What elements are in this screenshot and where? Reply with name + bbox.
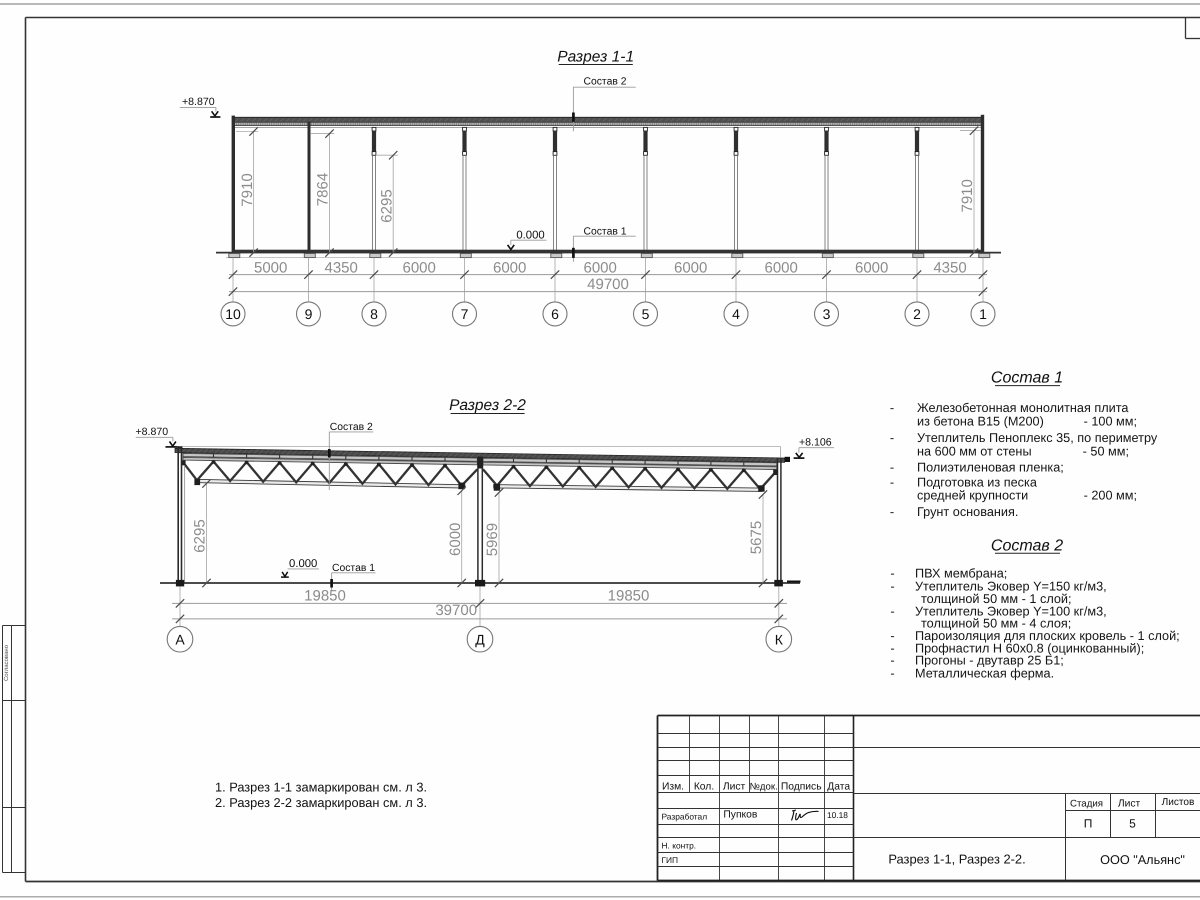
svg-text:Лист: Лист bbox=[723, 781, 746, 792]
svg-text:Дата: Дата bbox=[827, 781, 850, 792]
svg-text:К: К bbox=[775, 631, 784, 647]
svg-text:7910: 7910 bbox=[239, 173, 256, 206]
svg-text:5000: 5000 bbox=[254, 260, 287, 277]
svg-text:-: - bbox=[890, 401, 894, 415]
svg-text:6295: 6295 bbox=[192, 519, 209, 552]
svg-text:7910: 7910 bbox=[959, 179, 976, 212]
svg-text:-: - bbox=[890, 666, 894, 680]
svg-text:6000: 6000 bbox=[403, 260, 436, 277]
svg-text:2: 2 bbox=[913, 306, 921, 322]
svg-text:6000: 6000 bbox=[855, 260, 888, 277]
svg-text:Разрез 2-2: Разрез 2-2 bbox=[449, 397, 526, 414]
svg-text:на 600 мм от стены: на 600 мм от стены bbox=[917, 444, 1032, 458]
svg-text:2. Разрез 2-2 замаркирован см.: 2. Разрез 2-2 замаркирован см. л 3. bbox=[215, 795, 427, 810]
svg-text:1. Разрез 1-1 замаркирован см.: 1. Разрез 1-1 замаркирован см. л 3. bbox=[215, 780, 427, 795]
svg-text:- 50 мм;: - 50 мм; bbox=[1083, 444, 1129, 458]
svg-text:0.000: 0.000 bbox=[289, 558, 317, 570]
svg-text:Утеплитель Пеноплекс 35, по пе: Утеплитель Пеноплекс 35, по периметру bbox=[917, 431, 1158, 445]
svg-text:6000: 6000 bbox=[765, 260, 798, 277]
svg-text:из бетона В15 (М200): из бетона В15 (М200) bbox=[917, 414, 1044, 428]
svg-text:5: 5 bbox=[1129, 817, 1136, 831]
svg-text:-: - bbox=[890, 431, 894, 445]
svg-text:Состав 1: Состав 1 bbox=[583, 226, 626, 237]
svg-text:П: П bbox=[1084, 817, 1093, 831]
svg-text:6000: 6000 bbox=[493, 260, 526, 277]
svg-text:7: 7 bbox=[461, 306, 469, 322]
svg-text:-: - bbox=[890, 567, 894, 581]
svg-text:Листов: Листов bbox=[1162, 797, 1195, 808]
svg-text:4350: 4350 bbox=[325, 260, 358, 277]
svg-text:3: 3 bbox=[823, 306, 831, 322]
svg-text:10: 10 bbox=[225, 306, 241, 322]
svg-text:Грунт основания.: Грунт основания. bbox=[917, 505, 1018, 519]
svg-text:ПВХ мембрана;: ПВХ мембрана; bbox=[915, 567, 1007, 581]
svg-text:Состав 2: Состав 2 bbox=[330, 422, 373, 433]
svg-text:6295: 6295 bbox=[378, 189, 395, 222]
svg-text:Кол.: Кол. bbox=[694, 781, 714, 792]
svg-text:6000: 6000 bbox=[674, 260, 707, 277]
svg-text:-: - bbox=[890, 580, 894, 594]
svg-text:6000: 6000 bbox=[584, 260, 617, 277]
svg-text:А: А bbox=[175, 631, 185, 647]
svg-text:Полиэтиленовая пленка;: Полиэтиленовая пленка; bbox=[917, 460, 1064, 474]
svg-text:Металлическая ферма.: Металлическая ферма. bbox=[915, 666, 1054, 680]
svg-text:- 100 мм;: - 100 мм; bbox=[1084, 414, 1137, 428]
svg-text:4: 4 bbox=[732, 306, 740, 322]
svg-text:Стадия: Стадия bbox=[1070, 798, 1103, 809]
svg-text:-: - bbox=[890, 475, 894, 489]
svg-text:ООО "Альянс": ООО "Альянс" bbox=[1100, 853, 1185, 867]
svg-text:5969: 5969 bbox=[484, 523, 501, 556]
svg-text:Согласовано: Согласовано bbox=[3, 644, 10, 681]
svg-text:-: - bbox=[890, 505, 894, 519]
svg-text:-: - bbox=[890, 604, 894, 618]
svg-text:6: 6 bbox=[551, 306, 559, 322]
svg-text:39700: 39700 bbox=[435, 602, 477, 619]
svg-text:10.18: 10.18 bbox=[827, 810, 848, 820]
svg-text:1: 1 bbox=[979, 306, 987, 322]
svg-text:Состав 2: Состав 2 bbox=[583, 77, 626, 88]
svg-text:Разрез 1-1: Разрез 1-1 bbox=[557, 49, 634, 66]
svg-text:Состав 2: Состав 2 bbox=[991, 538, 1063, 555]
svg-text:Д: Д bbox=[475, 631, 485, 647]
svg-text:средней крупности: средней крупности bbox=[917, 489, 1028, 503]
svg-text:Состав 1: Состав 1 bbox=[332, 563, 375, 574]
svg-text:4350: 4350 bbox=[933, 260, 966, 277]
svg-text:+8.870: +8.870 bbox=[182, 96, 215, 108]
svg-text:Разработал: Разработал bbox=[662, 812, 708, 822]
svg-text:Разрез 1-1, Разрез 2-2.: Разрез 1-1, Разрез 2-2. bbox=[888, 852, 1025, 867]
svg-text:5: 5 bbox=[642, 306, 650, 322]
svg-text:19850: 19850 bbox=[608, 587, 650, 604]
svg-text:-: - bbox=[890, 460, 894, 474]
svg-text:19850: 19850 bbox=[304, 587, 346, 604]
svg-text:9: 9 bbox=[305, 306, 313, 322]
svg-text:6000: 6000 bbox=[447, 523, 464, 556]
svg-text:Лист: Лист bbox=[1118, 798, 1141, 809]
svg-text:Железобетонная монолитная пли: Железобетонная монолитная плита bbox=[917, 401, 1129, 415]
svg-text:8: 8 bbox=[370, 306, 378, 322]
svg-text:+8.106: +8.106 bbox=[799, 436, 832, 448]
svg-text:7864: 7864 bbox=[315, 173, 332, 206]
svg-text:Пупков: Пупков bbox=[723, 810, 757, 821]
svg-text:Н. контр.: Н. контр. bbox=[662, 841, 697, 851]
svg-text:Изм.: Изм. bbox=[662, 781, 684, 792]
svg-text:+8.870: +8.870 bbox=[135, 426, 168, 438]
svg-text:49700: 49700 bbox=[587, 276, 629, 293]
svg-text:ГИП: ГИП bbox=[662, 855, 679, 865]
svg-text:№док.: №док. bbox=[750, 781, 778, 792]
svg-text:5675: 5675 bbox=[748, 521, 765, 554]
svg-text:Состав 1: Состав 1 bbox=[991, 370, 1063, 387]
svg-text:- 200 мм;: - 200 мм; bbox=[1084, 489, 1137, 503]
svg-text:Подпись: Подпись bbox=[781, 781, 822, 792]
svg-text:Подготовка из песка: Подготовка из песка bbox=[917, 475, 1038, 489]
